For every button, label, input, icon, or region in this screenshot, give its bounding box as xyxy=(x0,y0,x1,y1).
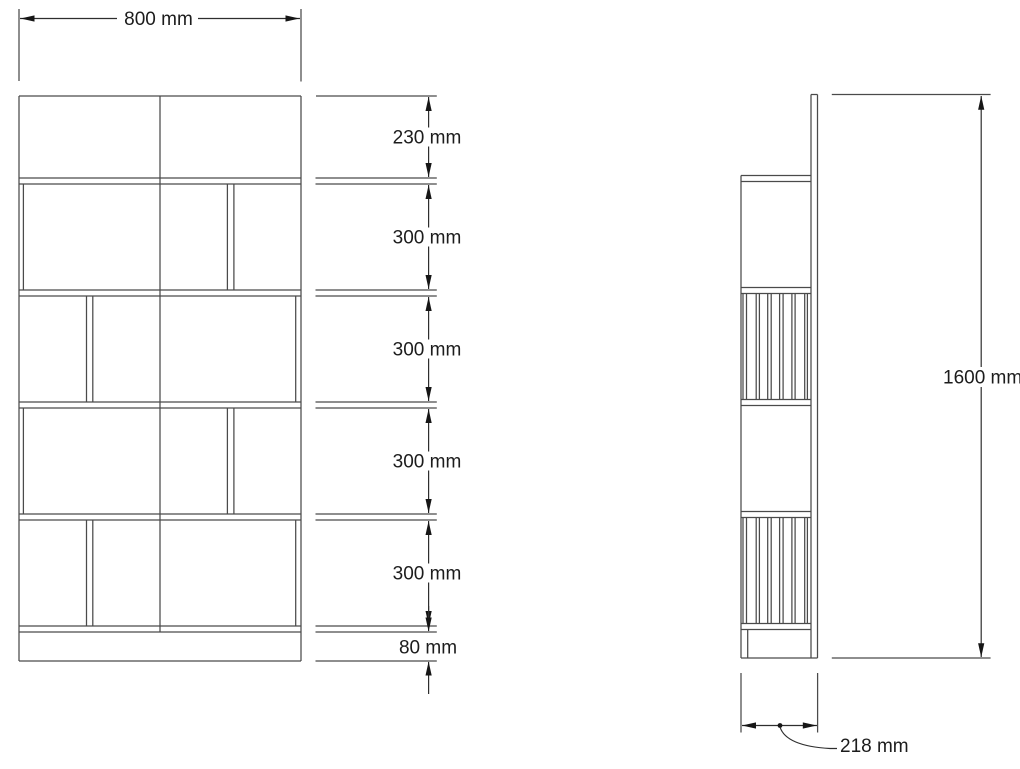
svg-text:300 mm: 300 mm xyxy=(393,452,462,473)
svg-text:800 mm: 800 mm xyxy=(124,9,193,30)
svg-text:230 mm: 230 mm xyxy=(393,128,462,149)
svg-text:80 mm: 80 mm xyxy=(399,638,457,659)
svg-text:300 mm: 300 mm xyxy=(393,564,462,585)
svg-text:218 mm: 218 mm xyxy=(840,736,909,757)
svg-text:1600 mm: 1600 mm xyxy=(943,368,1020,389)
svg-text:300 mm: 300 mm xyxy=(393,340,462,361)
svg-text:300 mm: 300 mm xyxy=(393,228,462,249)
